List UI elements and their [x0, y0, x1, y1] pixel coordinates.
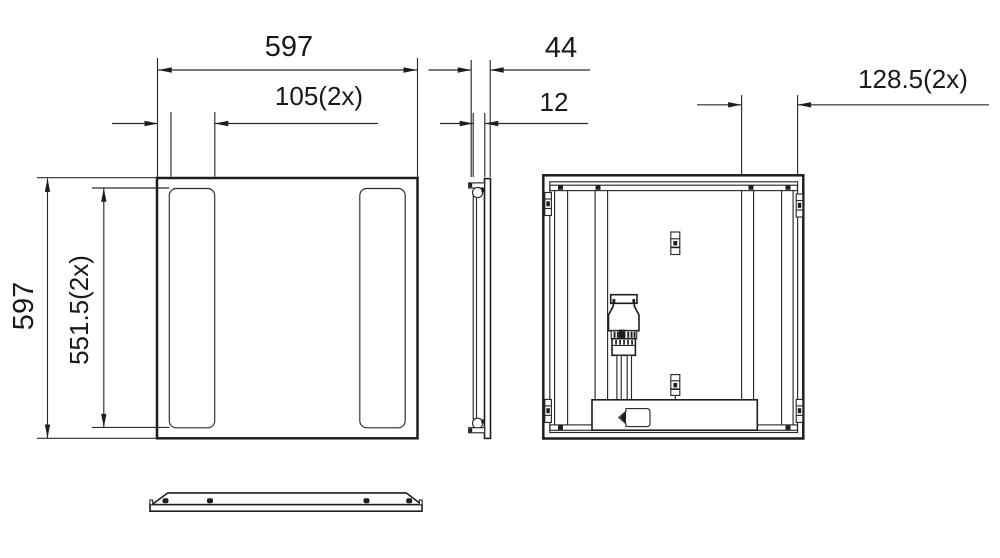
dim-slot-width: 105(2x) — [112, 81, 378, 177]
arrowhead — [458, 67, 472, 72]
dim-label-slot-width: 105(2x) — [275, 81, 363, 111]
arrowhead — [485, 121, 499, 126]
vent-fin — [614, 332, 616, 338]
terminal-tick — [623, 340, 625, 345]
terminal-tick — [627, 340, 629, 345]
fastener-upper — [671, 232, 680, 255]
bottom-clip-pin — [469, 428, 472, 432]
drawing-canvas: 597 105(2x) 597 551.5(2x) — [0, 0, 1000, 558]
corner-clip-top-left — [545, 193, 552, 216]
terminal-tick — [619, 340, 621, 345]
vent-fin — [631, 332, 633, 338]
dim-slot-length: 551.5(2x) — [64, 188, 170, 427]
connector-cap-tab — [632, 299, 635, 303]
fixing-mark — [558, 426, 563, 430]
fixing-mark — [596, 185, 601, 189]
connector-bell — [609, 303, 640, 330]
spring-clip — [163, 498, 169, 503]
clip-pin — [546, 201, 549, 206]
arrowhead — [45, 425, 50, 439]
mounting-slot-right — [360, 189, 405, 428]
top-clip-pin — [469, 183, 472, 187]
connector-cap-tab — [613, 299, 616, 303]
driver-housing — [592, 400, 757, 430]
arrowhead — [145, 121, 159, 126]
fixing-mark — [786, 185, 791, 189]
cable — [617, 355, 621, 400]
dim-label-panel-width: 597 — [265, 31, 313, 63]
dim-label-panel-height: 597 — [8, 282, 40, 330]
spring-clip — [406, 498, 412, 503]
corner-clip-top-right — [796, 194, 803, 217]
frame-profile — [473, 197, 476, 420]
arrowhead — [101, 414, 106, 428]
top-clip-roller — [473, 187, 483, 197]
fastener-lower — [671, 375, 680, 400]
dim-label-face-thickness: 12 — [540, 87, 569, 117]
arrowhead — [215, 121, 229, 126]
fixing-mark — [786, 426, 791, 430]
spring-clip — [364, 498, 370, 503]
terminal-tick — [631, 340, 633, 345]
clip-pin — [798, 408, 801, 413]
top-clip-notch — [481, 188, 484, 192]
top-rail — [550, 185, 797, 190]
arrowhead — [101, 188, 106, 202]
edge-lip-left — [150, 500, 153, 505]
spring-clip — [207, 498, 213, 503]
arrowhead — [728, 102, 742, 107]
arrowhead — [158, 67, 172, 72]
panel-face-edge — [485, 179, 491, 439]
fastener-pin — [673, 241, 677, 245]
mounting-slot-left — [169, 189, 214, 428]
fastener-pin — [673, 383, 677, 387]
rear-view — [543, 175, 803, 438]
corner-clip-bottom-right — [796, 399, 803, 422]
dim-label-slot-length: 551.5(2x) — [64, 255, 94, 365]
driver-box — [592, 400, 757, 430]
connector-latch — [619, 330, 626, 339]
edge-lip-right — [419, 500, 422, 505]
terminal-tick — [615, 340, 617, 345]
arrowhead — [404, 67, 418, 72]
dimension-drawing: 597 105(2x) 597 551.5(2x) — [0, 0, 1000, 558]
corner-clip-bottom-left — [545, 399, 552, 422]
front-view — [157, 178, 418, 438]
bottom-view — [150, 493, 422, 511]
dim-label-connector-offset: 128.5(2x) — [858, 64, 968, 94]
dim-connector-offset: 128.5(2x) — [697, 64, 989, 175]
housing-profile — [152, 493, 421, 505]
fixing-mark — [558, 185, 563, 189]
vent-fin — [634, 332, 636, 338]
arrowhead — [490, 67, 504, 72]
vent-fin — [627, 332, 629, 338]
clip-pin — [798, 203, 801, 208]
cable — [627, 355, 631, 400]
fixing-mark — [749, 185, 754, 189]
panel-face-profile — [150, 505, 422, 512]
bottom-clip-roller — [473, 418, 483, 428]
vent-fin — [617, 332, 619, 338]
arrowhead — [45, 178, 50, 192]
side-view — [469, 179, 491, 439]
dim-label-depth: 44 — [545, 32, 577, 64]
dim-face-thickness: 12 — [440, 87, 588, 177]
bottom-clip-notch — [481, 419, 484, 423]
arrowhead — [798, 102, 812, 107]
clip-pin — [546, 408, 549, 413]
